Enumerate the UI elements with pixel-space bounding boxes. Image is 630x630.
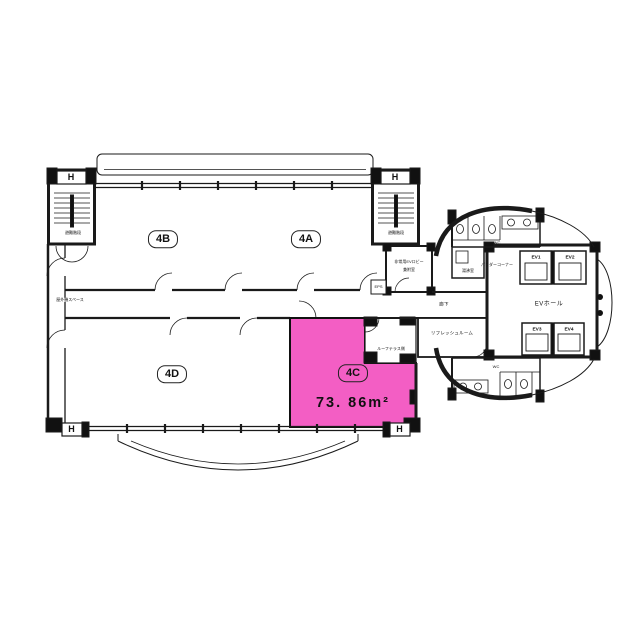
outdoor-unit-corridor [47, 244, 95, 426]
elevator-hall [484, 242, 612, 360]
top-balcony [97, 154, 373, 175]
top-window-wall [90, 180, 378, 190]
wc-top [448, 208, 544, 247]
floor-plan: H H H H 避難階段 避難階段 屋外機スペース 非常用EVロビー 兼附室 E… [0, 0, 630, 630]
bottom-balcony [118, 434, 358, 470]
kitchenette-room [452, 247, 484, 278]
stairwell-left [47, 168, 96, 244]
emergency-ev-lobby [371, 243, 435, 295]
stairwell-right [371, 168, 420, 244]
unit-4c-room [290, 317, 416, 428]
floor-plan-drawing [0, 0, 630, 630]
